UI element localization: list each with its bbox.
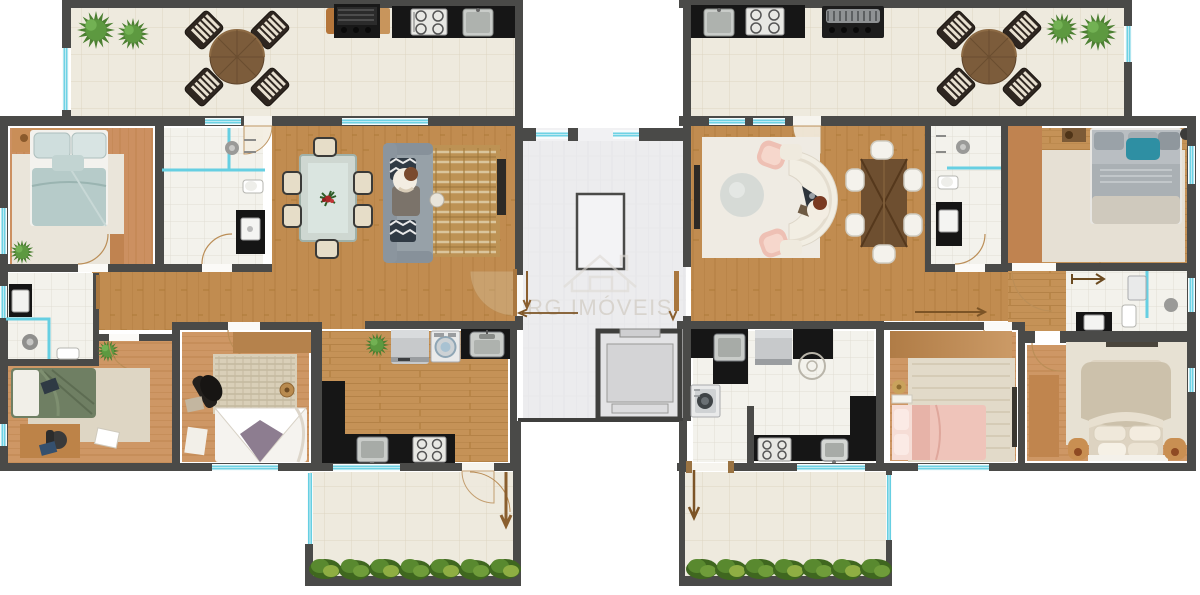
svg-text:RG IMÓVEIS: RG IMÓVEIS xyxy=(527,295,673,320)
